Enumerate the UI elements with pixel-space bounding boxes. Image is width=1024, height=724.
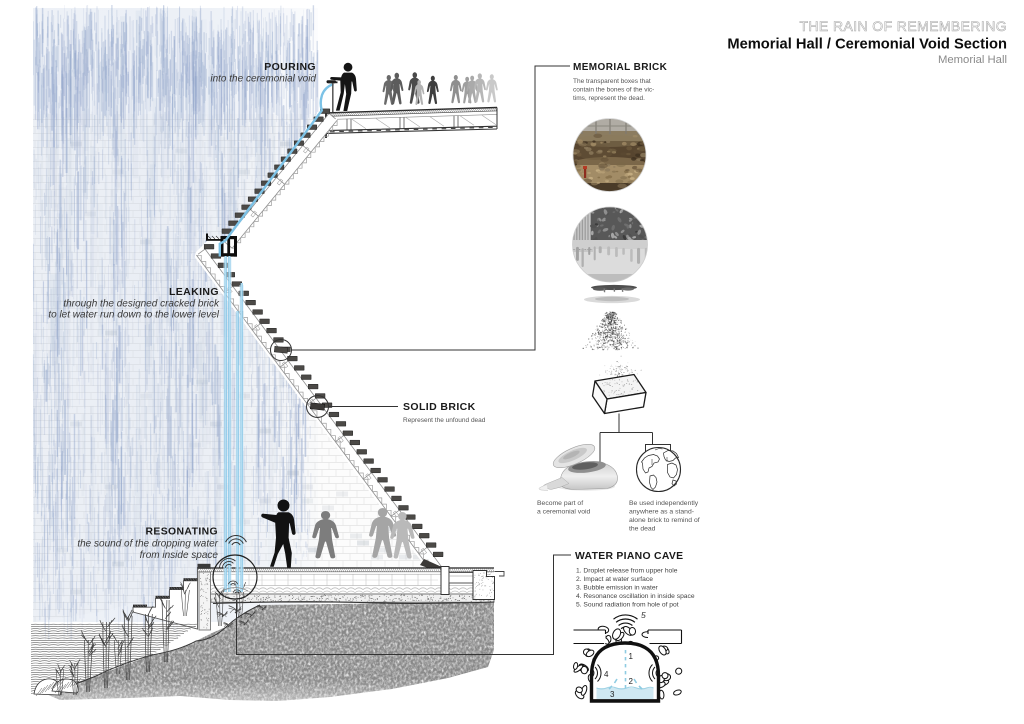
svg-text:1. Droplet release from upper: 1. Droplet release from upper hole <box>576 568 678 575</box>
svg-text:Memorial Hall: Memorial Hall <box>938 54 1007 66</box>
svg-text:SOLID BRICK: SOLID BRICK <box>403 401 476 413</box>
svg-text:RESONATING: RESONATING <box>145 527 218 538</box>
svg-text:into the ceremonial void: into the ceremonial void <box>210 74 316 85</box>
svg-text:3: 3 <box>610 690 615 699</box>
svg-text:a ceremonial void: a ceremonial void <box>537 509 590 516</box>
svg-text:4. Resonance oscillation in in: 4. Resonance oscillation in inside space <box>576 593 695 600</box>
svg-text:the sound of the dropping wate: the sound of the dropping water <box>77 539 218 550</box>
svg-text:1: 1 <box>629 652 634 661</box>
svg-text:5. Sound radiation from hole o: 5. Sound radiation from hole of pot <box>576 602 679 609</box>
svg-text:from inside space: from inside space <box>140 550 219 561</box>
svg-text:through the designed cracked b: through the designed cracked brick <box>63 299 220 310</box>
svg-text:2: 2 <box>629 677 634 686</box>
svg-text:contain the bones of the vic-: contain the bones of the vic- <box>573 87 654 94</box>
svg-text:Become part of: Become part of <box>537 500 583 507</box>
svg-text:to let water run down to the l: to let water run down to the lower level <box>48 310 219 321</box>
svg-text:3. Bubble emission in water: 3. Bubble emission in water <box>576 585 659 592</box>
svg-text:Memorial Hall / Ceremonial Voi: Memorial Hall / Ceremonial Void Section <box>727 37 1007 53</box>
svg-text:the dead: the dead <box>629 526 656 533</box>
svg-text:alone brick to remind of: alone brick to remind of <box>629 517 700 524</box>
svg-text:MEMORIAL BRICK: MEMORIAL BRICK <box>573 62 668 73</box>
svg-text:WATER PIANO CAVE: WATER PIANO CAVE <box>575 551 683 562</box>
svg-text:5: 5 <box>641 610 646 620</box>
svg-text:tims, represent the dead.: tims, represent the dead. <box>573 95 645 102</box>
svg-text:POURING: POURING <box>264 61 316 73</box>
svg-text:LEAKING: LEAKING <box>169 286 219 298</box>
svg-text:Be used independently: Be used independently <box>629 500 699 507</box>
svg-text:2. Impact at water surface: 2. Impact at water surface <box>576 576 653 583</box>
svg-text:The transparent boxes that: The transparent boxes that <box>573 78 651 85</box>
svg-text:Represent the unfound dead: Represent the unfound dead <box>403 417 486 424</box>
svg-text:anywhere as a stand-: anywhere as a stand- <box>629 509 694 516</box>
svg-text:THE RAIN OF REMEMBERING: THE RAIN OF REMEMBERING <box>799 18 1007 34</box>
svg-text:4: 4 <box>604 670 609 679</box>
